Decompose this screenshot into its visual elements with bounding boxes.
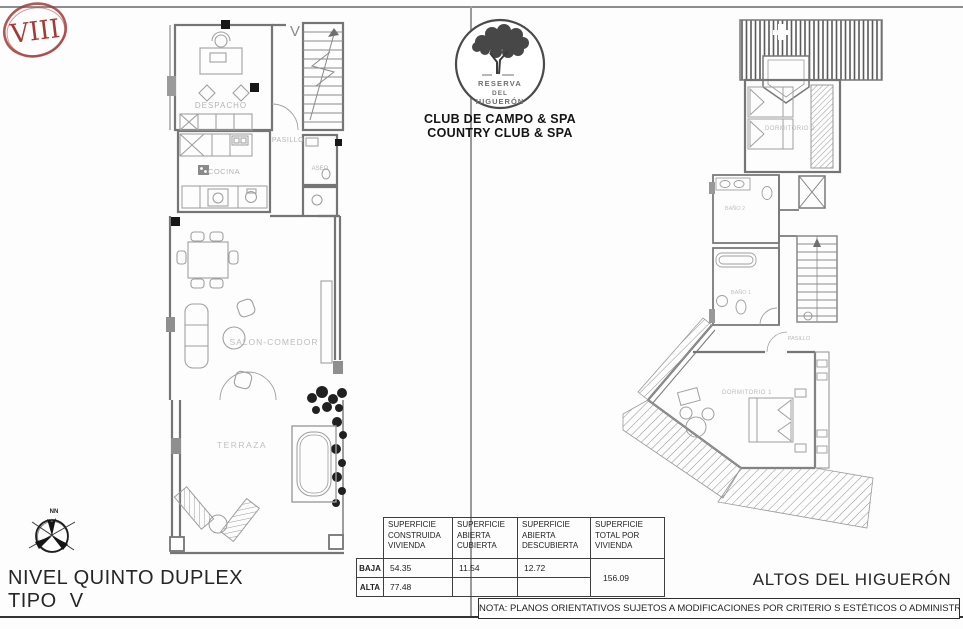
terrace-hatch-upper xyxy=(638,318,712,400)
floor-mark-label: V xyxy=(290,23,300,40)
logo-line2: DEL xyxy=(492,90,508,97)
terraza-label: TERRAZA xyxy=(217,440,267,450)
table-header-row: SUPERFICIE CONSTRUIDA VIVIENDA SUPERFICI… xyxy=(357,518,665,559)
header-abierta-descubierta: SUPERFICIE ABIERTA DESCUBIERTA xyxy=(518,518,591,559)
cocina-label: COCINA xyxy=(208,167,240,176)
header-construida: SUPERFICIE CONSTRUIDA VIVIENDA xyxy=(384,518,453,559)
note-box: NOTA: PLANOS ORIENTATIVOS SUJETOS A MODI… xyxy=(478,598,960,619)
left-plan-stairs xyxy=(303,28,343,122)
dorm1-right-strip xyxy=(815,352,829,468)
areas-table: SUPERFICIE CONSTRUIDA VIVIENDA SUPERFICI… xyxy=(356,517,665,597)
terrace-hatch-left xyxy=(623,400,741,498)
logo-subtitle-line1: CLUB DE CAMPO & SPA xyxy=(400,112,600,126)
stove-burner2 xyxy=(204,170,207,173)
header-abierta-cubierta: SUPERFICIE ABIERTA CUBIERTA xyxy=(453,518,518,559)
pasillo-label: PASILLO xyxy=(272,137,304,144)
bano2-label: BAÑO 2 xyxy=(725,205,745,212)
window-block1 xyxy=(709,182,715,194)
pasillo-label-right: PASILLO xyxy=(788,336,811,342)
level-title-line1: NIVEL QUINTO DUPLEX xyxy=(8,567,243,590)
table-row-baja: BAJA 54.35 11.54 12.72 156.09 xyxy=(357,559,665,578)
left-floorplan: V DESPACHO PASILLO COCINA ASEO SALON-COM… xyxy=(150,8,360,560)
right-floorplan: DORMITORIO 2 BAÑO 2 xyxy=(615,10,887,558)
dormitorio1-label: DORMITORIO 1 xyxy=(722,390,772,396)
compass-label: NN xyxy=(50,509,59,515)
approval-stamp: VIII xyxy=(1,0,75,66)
header-total: SUPERFICIE TOTAL POR VIVIENDA xyxy=(591,518,665,559)
plan-sheet: VIII RESERVA DEL HIGUERÓN CLUB DE CAMPO … xyxy=(0,0,963,629)
bano1-label: BAÑO 1 xyxy=(731,289,751,296)
despacho-label: DESPACHO xyxy=(195,101,247,110)
alta-descubierta xyxy=(518,578,591,597)
baja-construida: 54.35 xyxy=(384,559,453,578)
compass-needle xyxy=(35,518,68,550)
pasillo-door-arc xyxy=(767,332,787,352)
development-title: ALTOS DEL HIGUERÓN xyxy=(752,570,952,590)
dormitorio2-label: DORMITORIO 2 xyxy=(765,126,815,132)
bano1-walls xyxy=(713,248,779,325)
logo-line1: RESERVA xyxy=(478,79,522,88)
total-vivienda: 156.09 xyxy=(591,559,665,597)
shaft xyxy=(799,176,825,208)
row-label-alta: ALTA xyxy=(357,578,384,597)
reserva-logo: RESERVA DEL HIGUERÓN xyxy=(452,16,548,112)
pergola-cross2 xyxy=(778,24,784,40)
header-blank-cell xyxy=(357,518,384,559)
aseo-label: ASEO xyxy=(312,166,329,172)
despacho-furniture xyxy=(180,32,298,130)
top-rule xyxy=(0,6,963,8)
logo-subtitle-line2: COUNTRY CLUB & SPA xyxy=(400,126,600,140)
terrace-hatch-bottom xyxy=(718,468,873,528)
salon-comedor-label: SALON-COMEDOR xyxy=(229,337,318,347)
right-plan-stairs xyxy=(797,236,837,322)
baja-cubierta: 11.54 xyxy=(453,559,518,578)
stamp-numeral: VIII xyxy=(8,14,62,50)
logo-line3: HIGUERÓN xyxy=(476,97,524,106)
alta-cubierta xyxy=(453,578,518,597)
bano2-fixtures xyxy=(716,178,772,200)
bano2-walls xyxy=(713,175,799,325)
level-title-line2: TIPO V xyxy=(8,590,243,613)
baja-descubierta: 12.72 xyxy=(518,559,591,578)
plants xyxy=(307,386,347,507)
window-block2 xyxy=(709,309,715,323)
jacuzzi xyxy=(292,426,336,502)
row-label-baja: BAJA xyxy=(357,559,384,578)
alta-construida: 77.48 xyxy=(384,578,453,597)
salon-furniture xyxy=(177,232,332,400)
logo-subtitle: CLUB DE CAMPO & SPA COUNTRY CLUB & SPA xyxy=(400,112,600,140)
bano1-fixtures xyxy=(716,253,777,325)
compass-rose: NN xyxy=(22,500,86,562)
level-title: NIVEL QUINTO DUPLEX TIPO V xyxy=(8,567,243,613)
pergola-hatch xyxy=(740,20,882,80)
stove-burner xyxy=(200,167,203,170)
